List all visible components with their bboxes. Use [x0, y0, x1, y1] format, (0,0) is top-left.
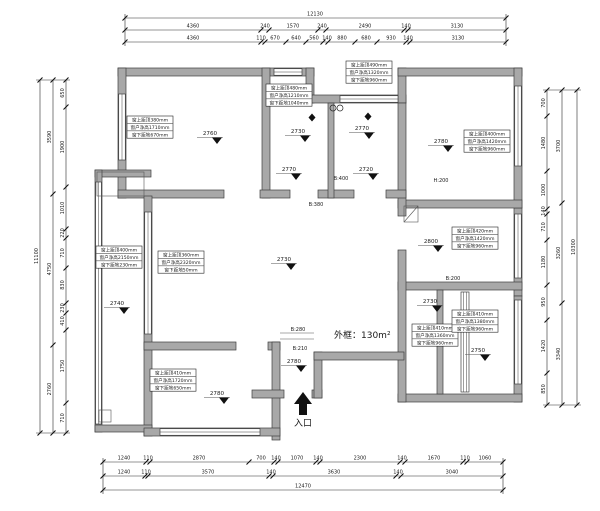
- window-symbol: [461, 292, 469, 392]
- dimension-label: 12470: [295, 484, 311, 490]
- svg-text:窗下距地50mm: 窗下距地50mm: [164, 266, 198, 273]
- dimension-label: 1670: [428, 456, 441, 462]
- svg-text:窗上距顶410mm: 窗上距顶410mm: [457, 311, 494, 318]
- dimension-label: 140: [403, 36, 413, 42]
- window-symbol: [145, 212, 152, 334]
- dimension-label: 1180: [541, 256, 547, 269]
- dimension-label: 12130: [307, 12, 323, 18]
- dimension-label: 110: [256, 36, 266, 42]
- dimension-label: 1240: [118, 470, 131, 476]
- dimension-label: 140: [322, 36, 332, 42]
- window-annotation: 窗上距顶480mm 窗户净高1210mm 窗下距地1040mm: [266, 84, 312, 106]
- dimension-label: 1750: [60, 360, 66, 373]
- svg-text:窗户净高1720mm: 窗户净高1720mm: [153, 377, 193, 384]
- svg-text:窗上距顶400mm: 窗上距顶400mm: [469, 131, 506, 138]
- svg-text:窗户净高1710mm: 窗户净高1710mm: [130, 124, 170, 131]
- elevation-mark: 2760: [197, 131, 223, 144]
- svg-text:2730: 2730: [291, 129, 306, 135]
- dimension-label: 140: [397, 456, 407, 462]
- dimension-label: 650: [60, 88, 66, 98]
- dimension-label: 11100: [34, 248, 40, 264]
- window-symbol: [515, 300, 522, 384]
- dimension-label: 3340: [556, 348, 562, 361]
- svg-text:窗上距顶420mm: 窗上距顶420mm: [457, 228, 494, 235]
- svg-text:窗上距顶480mm: 窗上距顶480mm: [271, 85, 308, 92]
- dimension-label: 1420: [541, 340, 547, 353]
- dimension-label: 140: [266, 470, 276, 476]
- dimension-label: 2490: [359, 24, 372, 30]
- window-annotation: 窗上距顶420mm 窗户净高1420mm 窗下距地960mm: [452, 227, 498, 249]
- dimension-label: 1010: [60, 202, 66, 215]
- elevation-mark: 2800: [418, 239, 444, 252]
- window-annotation: 窗上距顶490mm 窗户净高1320mm 窗下距地960mm: [346, 61, 392, 83]
- dimension-label: 3040: [446, 470, 459, 476]
- svg-text:窗户净高1360mm: 窗户净高1360mm: [415, 332, 455, 339]
- floor-plan-canvas: 12130 4360 240 1570 240 2490 140 3130 43…: [0, 0, 600, 511]
- dimension-label: 110: [143, 456, 153, 462]
- svg-text:2720: 2720: [359, 167, 374, 173]
- window-symbol: [119, 94, 126, 160]
- svg-text:窗户净高1420mm: 窗户净高1420mm: [455, 235, 495, 242]
- svg-text:窗上距顶360mm: 窗上距顶360mm: [163, 252, 200, 259]
- dimension-label: 10300: [571, 239, 577, 255]
- elevation-mark: 2770: [276, 167, 302, 180]
- svg-text:窗下距地670mm: 窗下距地670mm: [132, 131, 169, 138]
- dimension-label: 1480: [541, 137, 547, 150]
- beam-label: B:200: [446, 276, 461, 282]
- svg-text:2730: 2730: [277, 257, 292, 263]
- svg-text:2770: 2770: [355, 126, 370, 132]
- dimension-label: 2760: [47, 383, 53, 396]
- svg-text:窗户净高1420mm: 窗户净高1420mm: [467, 138, 507, 145]
- svg-text:窗下距地960mm: 窗下距地960mm: [469, 145, 506, 152]
- svg-text:2770: 2770: [282, 167, 297, 173]
- window-annotation: 窗上距顶410mm 窗户净高1360mm 窗下距地960mm: [412, 324, 458, 346]
- beam-label: B:400: [334, 176, 349, 182]
- dimension-label: 140: [541, 206, 547, 216]
- svg-text:2760: 2760: [203, 131, 218, 137]
- svg-text:窗户净高2320mm: 窗户净高2320mm: [161, 259, 201, 266]
- beam-label: B:280: [291, 327, 306, 333]
- dimension-label: 240: [317, 24, 327, 30]
- entrance-label: 入口: [294, 418, 312, 429]
- window-symbol: [96, 182, 102, 424]
- dimension-label: 140: [271, 456, 281, 462]
- svg-text:窗户净高1320mm: 窗户净高1320mm: [349, 69, 389, 76]
- area-label: 外框：130m²: [334, 329, 391, 341]
- dimension-label: 880: [337, 36, 347, 42]
- floor-plan-page: 12130 4360 240 1570 240 2490 140 3130 43…: [0, 0, 600, 511]
- window-symbol: [515, 214, 522, 278]
- elevation-mark: 2740: [104, 301, 130, 314]
- svg-text:2780: 2780: [210, 391, 225, 397]
- svg-text:窗上距顶400mm: 窗上距顶400mm: [101, 247, 138, 254]
- entrance-arrow: [294, 392, 312, 415]
- dimension-label: 3570: [202, 470, 215, 476]
- fixture-icon: [365, 113, 372, 121]
- window-symbol: [160, 429, 260, 436]
- dimension-label: 560: [309, 36, 319, 42]
- dimension-label: 140: [393, 470, 403, 476]
- dimension-label: 240: [260, 24, 270, 30]
- fixture-icon: [309, 114, 316, 122]
- elevation-mark: 2780: [281, 359, 307, 372]
- beam-lines: [280, 333, 314, 339]
- svg-text:窗上距顶380mm: 窗上距顶380mm: [132, 117, 169, 124]
- beam-label: B:210: [293, 346, 308, 352]
- svg-text:2750: 2750: [471, 348, 486, 354]
- svg-text:窗户净高1380mm: 窗户净高1380mm: [455, 318, 495, 325]
- dimension-label: 4360: [187, 36, 200, 42]
- dimension-label: 1060: [479, 456, 492, 462]
- dimension-label: 1240: [118, 456, 131, 462]
- dimension-label: 1570: [287, 24, 300, 30]
- elevation-mark: 2770: [349, 126, 375, 139]
- svg-text:窗上距顶490mm: 窗上距顶490mm: [351, 62, 388, 69]
- dimension-label: 1900: [60, 141, 66, 154]
- svg-text:窗上距顶410mm: 窗上距顶410mm: [155, 370, 192, 377]
- svg-text:2800: 2800: [424, 239, 439, 245]
- dimension-label: 140: [401, 24, 411, 30]
- elevation-mark: 2730: [271, 257, 297, 270]
- dimension-label: 930: [386, 36, 396, 42]
- window-annotation: 窗上距顶410mm 窗户净高1720mm 窗下距地650mm: [150, 369, 196, 391]
- window-annotation: 窗上距顶400mm 窗户净高2150mm 窗下距地230mm: [96, 246, 142, 268]
- dimension-label: 4360: [187, 24, 200, 30]
- svg-text:窗下距地960mm: 窗下距地960mm: [457, 325, 494, 332]
- elevation-mark: 2780: [204, 391, 230, 404]
- svg-text:窗下距地1040mm: 窗下距地1040mm: [269, 99, 309, 106]
- dimension-label: 710: [60, 413, 66, 423]
- elevation-mark: 2730: [285, 129, 311, 142]
- beam-label: B:380: [309, 202, 324, 208]
- svg-text:窗上距顶410mm: 窗上距顶410mm: [417, 325, 454, 332]
- svg-text:窗户净高1210mm: 窗户净高1210mm: [269, 92, 309, 99]
- svg-text:2780: 2780: [287, 359, 302, 365]
- svg-text:窗下距地960mm: 窗下距地960mm: [351, 76, 388, 83]
- dimension-label: 3700: [556, 140, 562, 153]
- dimension-label: 3130: [451, 24, 464, 30]
- elevation-mark: 2780: [428, 139, 454, 152]
- window-annotation: 窗上距顶360mm 窗户净高2320mm 窗下距地50mm: [158, 251, 204, 273]
- dimension-label: 110: [141, 470, 151, 476]
- dimension-label: 230: [60, 303, 66, 313]
- window-annotation: 窗上距顶400mm 窗户净高1420mm 窗下距地960mm: [464, 130, 510, 152]
- svg-text:2730: 2730: [423, 299, 438, 305]
- window-annotation: 窗上距顶410mm 窗户净高1380mm 窗下距地960mm: [452, 310, 498, 332]
- dimension-label: 4750: [47, 263, 53, 276]
- dimension-label: 1000: [541, 184, 547, 197]
- dimension-label: 710: [60, 248, 66, 258]
- dimension-label: 670: [270, 36, 280, 42]
- dimension-label: 140: [313, 456, 323, 462]
- svg-text:2740: 2740: [110, 301, 125, 307]
- window-symbol: [515, 86, 522, 166]
- dimension-label: 680: [361, 36, 371, 42]
- svg-text:窗下距地650mm: 窗下距地650mm: [155, 384, 192, 391]
- beam-label: H:200: [434, 178, 449, 184]
- svg-text:窗下距地960mm: 窗下距地960mm: [417, 339, 454, 346]
- dimension-label: 3260: [556, 247, 562, 260]
- dimension-label: 1070: [291, 456, 304, 462]
- dimension-label: 2300: [354, 456, 367, 462]
- dimension-label: 220: [60, 228, 66, 238]
- svg-text:窗下距地960mm: 窗下距地960mm: [457, 242, 494, 249]
- dimension-label: 700: [256, 456, 266, 462]
- dimension-label: 110: [460, 456, 470, 462]
- dimension-label: 3590: [47, 131, 53, 144]
- window-symbol: [274, 69, 302, 76]
- window-symbol: [340, 96, 398, 103]
- dimension-label: 640: [291, 36, 301, 42]
- svg-text:窗户净高2150mm: 窗户净高2150mm: [99, 254, 139, 261]
- dimension-label: 2870: [193, 456, 206, 462]
- dimension-label: 950: [541, 297, 547, 307]
- dimension-label: 410: [60, 316, 66, 326]
- dimension-label: 700: [541, 98, 547, 108]
- dimension-label: 830: [60, 280, 66, 290]
- dimension-label: 850: [541, 384, 547, 394]
- dimension-label: 3630: [328, 470, 341, 476]
- dimension-label: 710: [541, 222, 547, 232]
- elevation-mark: 2720: [353, 167, 379, 180]
- svg-text:窗下距地230mm: 窗下距地230mm: [101, 261, 138, 268]
- window-annotation: 窗上距顶380mm 窗户净高1710mm 窗下距地670mm: [127, 116, 173, 138]
- svg-text:2780: 2780: [434, 139, 449, 145]
- dimension-label: 3130: [452, 36, 465, 42]
